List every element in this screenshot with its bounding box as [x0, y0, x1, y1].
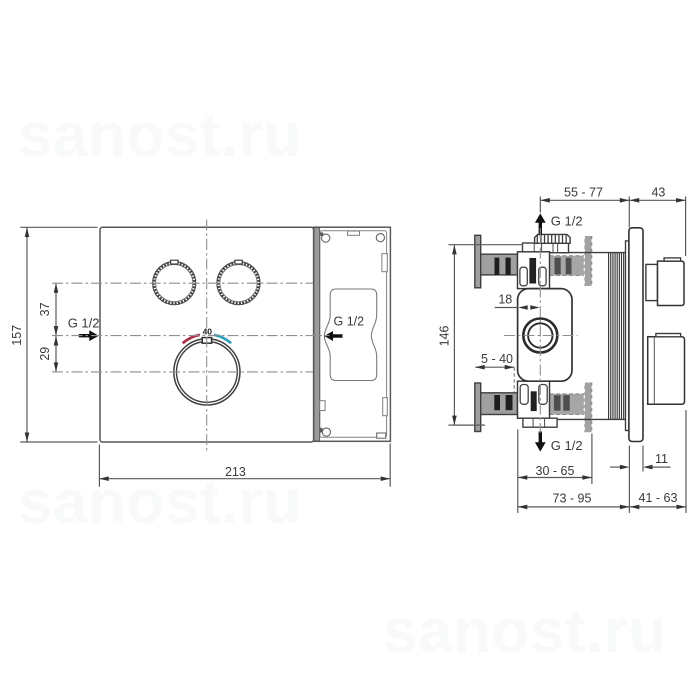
svg-text:18: 18 — [498, 293, 512, 307]
svg-text:30 - 65: 30 - 65 — [536, 464, 575, 478]
svg-text:213: 213 — [225, 465, 246, 479]
svg-text:41 - 63: 41 - 63 — [639, 491, 678, 505]
svg-text:G 1/2: G 1/2 — [551, 213, 583, 228]
svg-text:5 - 40: 5 - 40 — [481, 352, 513, 366]
svg-text:G 1/2: G 1/2 — [551, 438, 583, 453]
svg-text:sanost.ru: sanost.ru — [18, 101, 302, 170]
svg-text:157: 157 — [10, 325, 24, 346]
svg-text:29: 29 — [38, 347, 52, 361]
svg-text:G 1/2: G 1/2 — [68, 316, 100, 331]
svg-text:sanost.ru: sanost.ru — [383, 597, 667, 666]
svg-text:G 1/2: G 1/2 — [334, 314, 365, 328]
svg-text:37: 37 — [38, 302, 52, 316]
svg-text:11: 11 — [655, 452, 668, 466]
svg-text:43: 43 — [651, 186, 665, 200]
svg-text:55 - 77: 55 - 77 — [564, 186, 603, 200]
svg-text:146: 146 — [437, 326, 451, 347]
svg-text:73 - 95: 73 - 95 — [553, 492, 592, 506]
